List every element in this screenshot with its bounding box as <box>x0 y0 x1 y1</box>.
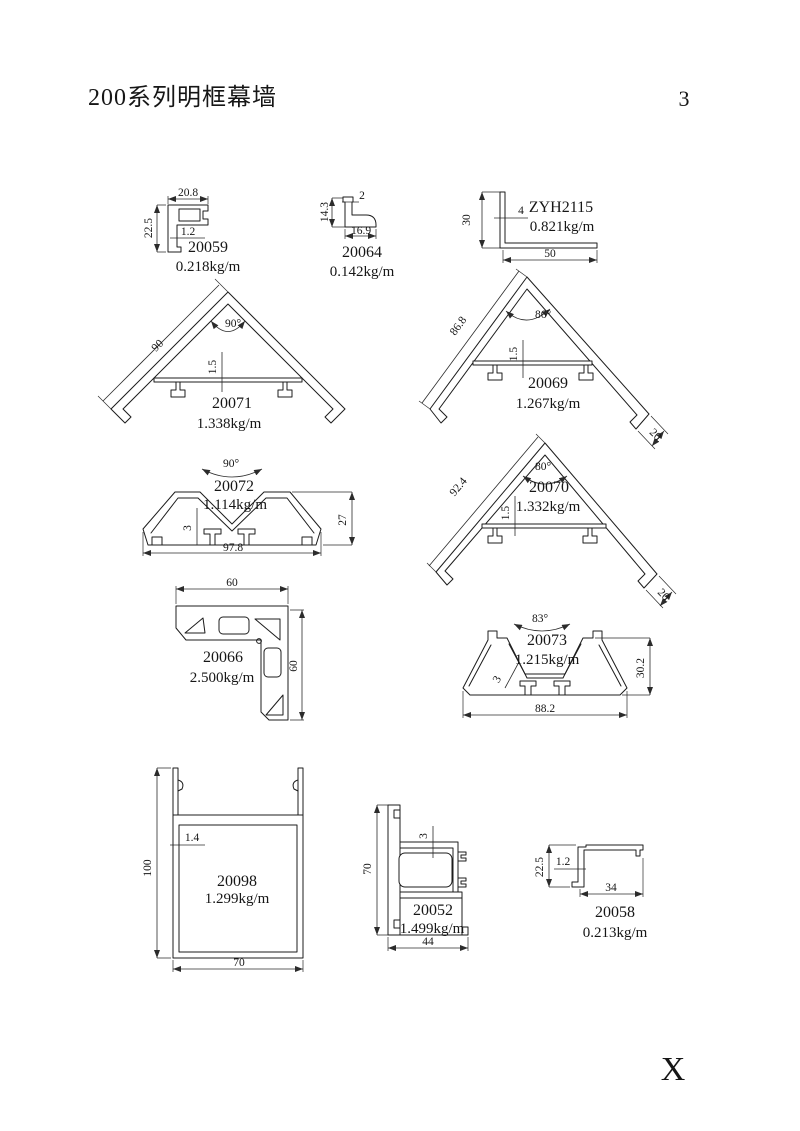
dim-right-height: 27 <box>337 514 349 526</box>
profile-20052-hook-top-right <box>458 852 466 861</box>
profile-20071: 90° 90 1.5 20071 1.338kg/m <box>98 279 345 432</box>
profile-20052: 70 3 44 20052 1.499kg/m <box>362 805 468 951</box>
profile-code: 20059 <box>188 239 228 256</box>
profile-20066: 60 60 20066 2.500kg/m <box>176 577 304 720</box>
dim-top-width: 20.8 <box>178 187 198 199</box>
profile-20052-cavity <box>399 853 452 887</box>
dim-side-length: 86.8 <box>448 314 470 338</box>
profile-code: 20069 <box>528 375 568 392</box>
profile-code: ZYH2115 <box>529 199 593 216</box>
profile-20069: 86° 86.8 1.5 20 20069 1.267kg/m <box>419 269 668 449</box>
dim-wall-thickness: 3 <box>418 833 430 839</box>
dim-right-width: 34 <box>605 882 617 894</box>
profile-weight: 1.114kg/m <box>203 497 267 513</box>
dim-bottom-width: 50 <box>544 248 556 260</box>
dim-left-height: 100 <box>142 859 154 877</box>
profile-weight: 1.267kg/m <box>516 396 581 412</box>
profile-20071-hook-left <box>171 382 185 397</box>
profile-code: 20058 <box>595 904 635 921</box>
profile-20070-web <box>482 524 606 528</box>
page-number: 3 <box>679 86 690 111</box>
dim-bottom-width: 16.9 <box>351 225 371 237</box>
angle-dimension: 86° <box>535 309 552 321</box>
profile-20058: 1.2 22.5 34 20058 0.213kg/m <box>534 845 648 941</box>
dim-bottom-width: 44 <box>422 936 434 948</box>
dim-bottom-width: 88.2 <box>535 703 555 715</box>
profile-20052-hook-bottom-right <box>458 878 466 887</box>
dim-bottom-width: 70 <box>233 957 245 969</box>
corner-mark: X <box>661 1051 686 1088</box>
dim-bottom-width: 97.8 <box>223 542 243 554</box>
dim-right-height: 30.2 <box>635 658 647 678</box>
dim-left-height: 30 <box>461 214 473 226</box>
profile-weight: 2.500kg/m <box>190 670 255 686</box>
profile-weight: 0.142kg/m <box>330 264 395 280</box>
angle-dimension: 90° <box>225 318 242 330</box>
profile-20098-hook-left <box>178 780 183 791</box>
profile-code: 20072 <box>214 478 254 495</box>
profile-20071-hook-right <box>278 382 292 397</box>
profile-20069-hook-right <box>579 365 593 380</box>
profile-20070-hook-right <box>583 528 597 543</box>
profile-20098-hook-right <box>293 780 298 791</box>
profile-20052-plate <box>388 805 400 935</box>
dim-top-width: 60 <box>226 577 238 589</box>
profile-20059: 20.8 22.5 1.2 20059 0.218kg/m <box>143 187 241 275</box>
profile-20066-cavity-4 <box>264 648 281 677</box>
dim-wall-thickness: 1.2 <box>556 856 571 868</box>
profile-zyh2115: 30 4 50 ZYH2115 0.821kg/m <box>461 192 597 263</box>
profile-code: 20071 <box>212 395 252 412</box>
dim-left-height: 22.5 <box>534 857 546 877</box>
dim-wall-thickness: 1.2 <box>181 226 196 238</box>
dim-wall-thickness: 1.5 <box>207 360 219 375</box>
profile-code: 20064 <box>342 244 382 261</box>
profile-code: 20066 <box>203 649 243 666</box>
profile-20098-ear-right <box>298 768 303 815</box>
profile-20066-cavity-2 <box>219 617 249 634</box>
dim-wall-thickness: 1.5 <box>500 506 512 521</box>
profile-code: 20070 <box>529 479 569 496</box>
dim-leg-length: 20 <box>647 427 664 444</box>
dim-right-height: 60 <box>288 660 300 672</box>
profile-weight: 1.215kg/m <box>515 652 580 668</box>
profile-weight: 1.499kg/m <box>400 921 465 937</box>
profile-weight: 0.821kg/m <box>530 219 595 235</box>
profile-weight: 0.213kg/m <box>583 925 648 941</box>
profile-20098-ear-left <box>173 768 178 815</box>
profile-code: 20098 <box>217 873 257 890</box>
dim-wall-thickness: 3 <box>182 525 194 531</box>
profile-20058-outline <box>572 845 643 887</box>
catalog-page: 200系列明框幕墙 3 X 20.8 22.5 1.2 20059 0.218k… <box>0 0 800 1131</box>
profile-20073: 83° 3 88.2 30.2 20073 1.215kg/m <box>463 613 650 718</box>
profile-20069-web <box>473 361 592 365</box>
profile-20069-hook-left <box>488 365 502 380</box>
profile-20098: 1.4 100 70 20098 1.299kg/m <box>142 768 303 972</box>
profile-weight: 0.218kg/m <box>176 259 241 275</box>
profile-code: 20052 <box>413 902 453 919</box>
dim-side-length: 92.4 <box>448 475 470 498</box>
profile-20059-cavity <box>179 209 200 221</box>
angle-dimension: 83° <box>532 613 549 625</box>
dim-left-height: 14.3 <box>319 202 331 222</box>
profile-20072: 90° 97.8 27 3 20072 1.114kg/m <box>143 458 352 556</box>
dim-left-height: 22.5 <box>143 218 155 238</box>
profile-20070-hook-left <box>488 528 502 543</box>
profiles-drawing-sheet: 200系列明框幕墙 3 X 20.8 22.5 1.2 20059 0.218k… <box>0 0 800 1131</box>
angle-dimension: 90° <box>223 458 240 470</box>
profile-20071-web <box>154 378 302 382</box>
page-title: 200系列明框幕墙 <box>88 84 277 111</box>
profile-weight: 1.332kg/m <box>516 499 581 515</box>
profile-20070: 80° 92.4 1.5 20 20070 1.332kg/m <box>427 434 676 608</box>
dim-leg-length: 20 <box>655 587 672 604</box>
profile-weight: 1.299kg/m <box>205 891 270 907</box>
profile-weight: 1.338kg/m <box>197 416 262 432</box>
profile-20064: 2 14.3 16.9 20064 0.142kg/m <box>319 190 395 280</box>
dim-wall-thickness: 1.4 <box>185 832 200 844</box>
profile-code: 20073 <box>527 632 567 649</box>
angle-dimension: 80° <box>535 461 552 473</box>
dim-wall-thickness: 2 <box>359 190 365 202</box>
dim-wall-thickness: 4 <box>518 205 524 217</box>
dim-left-height: 70 <box>362 863 374 875</box>
dim-wall-thickness: 1.5 <box>508 347 520 362</box>
